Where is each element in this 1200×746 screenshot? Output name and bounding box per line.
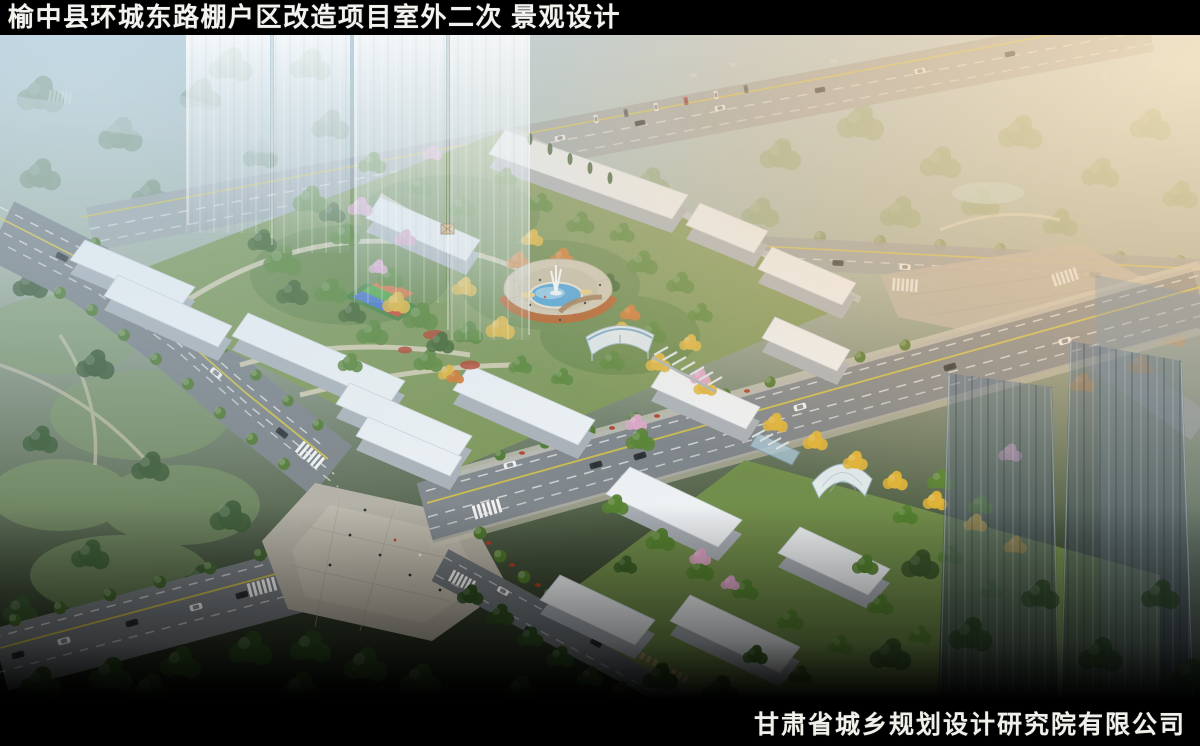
credit-bar: 甘肃省城乡规划设计研究院有限公司 xyxy=(0,700,1200,746)
aerial-render xyxy=(0,35,1200,700)
title-bar: 榆中县环城东路棚户区改造项目室外二次 景观设计 xyxy=(0,0,1200,35)
render-scene xyxy=(0,35,1200,700)
company-name: 甘肃省城乡规划设计研究院有限公司 xyxy=(754,705,1200,741)
project-title: 榆中县环城东路棚户区改造项目室外二次 景观设计 xyxy=(0,0,1200,33)
presentation-board: 榆中县环城东路棚户区改造项目室外二次 景观设计 xyxy=(0,0,1200,746)
bottom-fade xyxy=(0,505,1200,700)
